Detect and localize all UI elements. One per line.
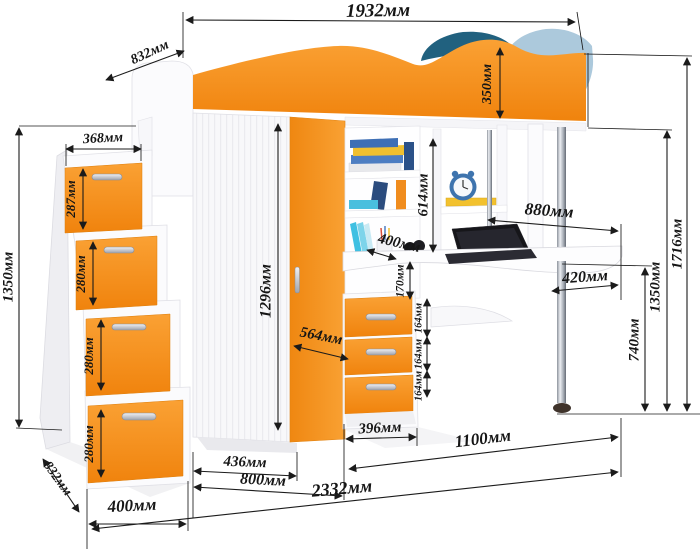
dim-wardrobe-section-a-label: 436мм bbox=[222, 454, 267, 472]
dim-stairs-depth: 832мм bbox=[41, 458, 79, 512]
dim-stairs-depth-label: 832мм bbox=[41, 458, 76, 498]
tick-1350-top bbox=[588, 128, 672, 130]
dim-stair-step-4-label: 280мм bbox=[81, 425, 96, 463]
pole-foot bbox=[553, 403, 571, 413]
dim-desk-height-label: 740мм bbox=[626, 318, 642, 361]
book-cyan bbox=[349, 200, 378, 209]
dim-desk-corner-label: 420мм bbox=[560, 267, 608, 287]
dim-wardrobe-section-b-label: 800мм bbox=[240, 470, 287, 489]
dim-bed-length: 1932мм bbox=[186, 0, 575, 22]
dim-drawer-1-label: 164мм bbox=[413, 303, 424, 333]
wardrobe-side-panel bbox=[193, 113, 290, 442]
bookshelf bbox=[345, 126, 420, 300]
dim-stairs-height: 1350мм bbox=[0, 128, 19, 427]
dim-stairs-width-label: 400мм bbox=[106, 495, 157, 517]
dim-shelf-gap-label: 170мм bbox=[395, 264, 407, 297]
dim-underbed-height-label: 1350мм bbox=[647, 262, 663, 313]
dim-total-height-label: 1716мм bbox=[669, 219, 685, 270]
dim-stair-step-2-label: 280мм bbox=[73, 255, 88, 293]
furniture-dimension-diagram: 1932мм 832мм 350мм 368мм 287мм 280мм 280… bbox=[0, 0, 700, 557]
dim-stair-step-3-label: 280мм bbox=[81, 337, 96, 375]
dim-stairs-width: 400мм bbox=[89, 495, 186, 524]
dim-desk-height: 740мм bbox=[626, 268, 645, 411]
drawer-unit bbox=[343, 291, 418, 429]
dim-desk-length-label: 880мм bbox=[524, 199, 574, 221]
dim-drawer-3-label: 164мм bbox=[413, 371, 424, 401]
dim-drawer-2: 164мм bbox=[413, 337, 427, 371]
stair-handle-1 bbox=[92, 174, 122, 180]
dim-hutch-height-label: 614мм bbox=[415, 173, 431, 216]
bed-leg-post bbox=[528, 124, 543, 252]
tick-1716-top bbox=[584, 54, 692, 56]
dim-wardrobe-door-height-label: 1296мм bbox=[258, 264, 275, 318]
drawer-front-2 bbox=[345, 337, 412, 375]
drawer-front-3 bbox=[345, 375, 413, 414]
loft-bed-drawing: 1932мм 832мм 350мм 368мм 287мм 280мм 280… bbox=[0, 0, 700, 557]
drawer-handle-3 bbox=[366, 384, 396, 390]
stair-handle-2 bbox=[104, 247, 134, 253]
dim-drawer-1: 164мм bbox=[413, 299, 427, 337]
dim-total-width-label: 2332мм bbox=[310, 476, 373, 501]
book-orange bbox=[396, 180, 406, 210]
drawer-handle-2 bbox=[366, 349, 396, 355]
stair-handle-3 bbox=[112, 324, 146, 330]
dim-drawer-2-label: 164мм bbox=[413, 339, 424, 369]
dim-stairs-top-width: 368мм bbox=[66, 130, 141, 149]
bed-front-rail bbox=[193, 40, 586, 121]
laptop-display bbox=[456, 228, 524, 251]
corner-shelf bbox=[431, 306, 512, 327]
book-navy-upright bbox=[404, 142, 414, 171]
stair-handle-4 bbox=[122, 413, 156, 420]
dim-bed-rail-height-label: 350мм bbox=[480, 64, 495, 106]
stair-drawer-front-4 bbox=[88, 400, 183, 483]
wardrobe-door-handle bbox=[295, 267, 300, 293]
desk-pole-upper bbox=[557, 127, 566, 252]
dim-stairs-top-width-label: 368мм bbox=[82, 130, 124, 147]
dim-desk-span-label: 1100мм bbox=[454, 426, 513, 452]
dim-bed-length-label: 1932мм bbox=[346, 0, 410, 22]
drawer-handle-1 bbox=[366, 314, 396, 320]
hutch-left-panel bbox=[433, 129, 441, 258]
dim-total-height: 1716мм bbox=[669, 58, 687, 411]
dim-stairs-height-label: 1350мм bbox=[0, 252, 16, 303]
dim-drawer-unit-width-label: 396мм bbox=[357, 419, 402, 437]
dim-stair-step-1-label: 287мм bbox=[63, 180, 78, 218]
dim-drawer-3: 164мм bbox=[413, 371, 427, 401]
dim-underbed-height: 1350мм bbox=[647, 131, 667, 411]
